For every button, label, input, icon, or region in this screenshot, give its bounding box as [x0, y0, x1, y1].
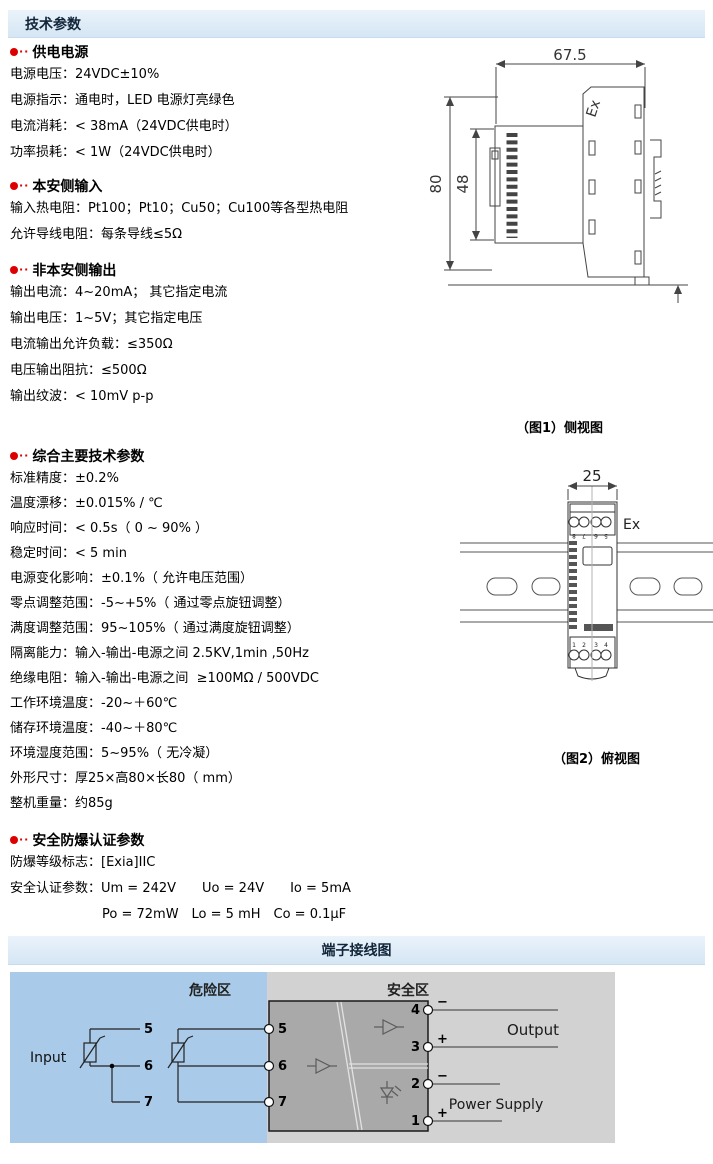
- spec-line: 响应时间：< 0.5s（ 0 ~ 90% ）: [10, 516, 450, 541]
- spec-line: 功率损耗：< 1W（24VDC供电时）: [10, 140, 450, 166]
- spec-line: 电流输出允许负载：≤350Ω: [10, 332, 450, 358]
- top-view-drawing: 25 Ex 8 7 6 5 1 2 3 4: [460, 455, 713, 685]
- section-general-params: ·· 综合主要技术参数 标准精度：±0.2% 温度漂移：±0.015% / ℃ …: [10, 446, 450, 816]
- terminal-number: 6: [594, 532, 598, 539]
- wire-label: 6: [144, 1059, 153, 1074]
- terminal-number: 3: [594, 642, 598, 649]
- spec-line: 绝缘电阻：输入-输出-电源之间 ≥100MΩ / 500VDC: [10, 666, 450, 691]
- spec-line: 整机重量：约85g: [10, 791, 450, 816]
- leader-dots: ··: [19, 48, 29, 56]
- dim-width-label: 67.5: [553, 48, 586, 64]
- spec-line: 满度调整范围：95~105%（ 通过满度旋钮调整）: [10, 616, 450, 641]
- polarity-sign: −: [437, 1069, 448, 1084]
- figure2-caption: （图2）俯视图: [553, 748, 640, 767]
- terminal-wiring-header-bar: 端子接线图: [8, 936, 705, 965]
- terminal-number: 7: [582, 532, 586, 539]
- spec-line: 储存环境温度：-40~＋80℃: [10, 716, 450, 741]
- dim-height-label: 80: [428, 174, 445, 193]
- terminal-number: 5: [278, 1022, 287, 1037]
- hazard-zone-label: 危险区: [188, 982, 231, 999]
- spec-line: 外形尺寸：厚25×高80×长80（ mm）: [10, 766, 450, 791]
- terminal-wiring-title: 端子接线图: [322, 940, 392, 960]
- safe-zone-label: 安全区: [387, 982, 429, 999]
- polarity-sign: +: [437, 1106, 448, 1121]
- spec-line: 电源变化影响：±0.1%（ 允许电压范围）: [10, 566, 450, 591]
- section-title: 本安侧输入: [32, 176, 102, 196]
- spec-line: 电流消耗：< 38mA（24VDC供电时）: [10, 114, 450, 140]
- red-bullet-icon: [10, 182, 18, 190]
- dim-width-label: 25: [582, 467, 601, 485]
- input-label: Input: [30, 1050, 67, 1066]
- terminal-number: 3: [411, 1040, 420, 1055]
- red-bullet-icon: [10, 266, 18, 274]
- spec-line: 电压输出阻抗：≤500Ω: [10, 358, 450, 384]
- terminal-number: 2: [411, 1077, 420, 1092]
- section-heading: ·· 安全防爆认证参数: [10, 830, 450, 850]
- terminal-number: 5: [604, 532, 608, 539]
- spec-line: 零点调整范围：-5~+5%（ 通过零点旋钮调整）: [10, 591, 450, 616]
- section-explosion-proof: ·· 安全防爆认证参数 防爆等级标志：[Exia]IIC 安全认证参数：Um =…: [10, 830, 450, 928]
- spec-line: 标准精度：±0.2%: [10, 466, 450, 491]
- spec-line: 温度漂移：±0.015% / ℃: [10, 491, 450, 516]
- section-title: 综合主要技术参数: [32, 446, 144, 466]
- spec-line: 电源电压：24VDC±10%: [10, 62, 450, 88]
- leader-dots: ··: [19, 452, 29, 460]
- section-power-supply: ·· 供电电源 电源电压：24VDC±10% 电源指示：通电时，LED 电源灯亮…: [10, 42, 450, 166]
- leader-dots: ··: [19, 182, 29, 190]
- tech-params-title: 技术参数: [25, 14, 81, 34]
- wiring-diagram: 危险区 安全区: [10, 972, 615, 1147]
- section-title: 安全防爆认证参数: [32, 830, 144, 850]
- figure2-top-view: 25 Ex 8 7 6 5 1 2 3 4: [460, 455, 713, 689]
- terminal-number: 1: [572, 642, 576, 649]
- ex-marking-label: Ex: [584, 98, 605, 119]
- spec-line-continuation: Po = 72mW Lo = 5 mH Co = 0.1μF: [102, 902, 450, 928]
- dim-inner-label: 48: [454, 174, 472, 193]
- spec-line: 允许导线电阻：每条导线≤5Ω: [10, 222, 450, 248]
- leader-dots: ··: [19, 836, 29, 844]
- spec-line: 输出电流：4~20mA； 其它指定电流: [10, 280, 450, 306]
- figure1-side-view: 67.5 80 48 Ex 3.2: [428, 48, 713, 307]
- spec-line: 隔离能力：输入-输出-电源之间 2.5KV,1min ,50Hz: [10, 641, 450, 666]
- spec-line: 电源指示：通电时，LED 电源灯亮绿色: [10, 88, 450, 114]
- section-title: 非本安侧输出: [32, 260, 116, 280]
- spec-line: 工作环境温度：-20~＋60℃: [10, 691, 450, 716]
- spec-line: 防爆等级标志：[Exia]IIC: [10, 850, 450, 876]
- red-bullet-icon: [10, 48, 18, 56]
- polarity-sign: −: [437, 995, 448, 1010]
- section-intrinsic-input: ·· 本安侧输入 输入热电阻：Pt100；Pt10；Cu50；Cu100等各型热…: [10, 176, 450, 248]
- section-heading: ·· 本安侧输入: [10, 176, 450, 196]
- section-title: 供电电源: [32, 42, 88, 62]
- section-non-intrinsic-output: ·· 非本安侧输出 输出电流：4~20mA； 其它指定电流 输出电压：1~5V；…: [10, 260, 450, 410]
- terminal-number: 7: [278, 1095, 287, 1110]
- spec-line: 输出电压：1~5V；其它指定电压: [10, 306, 450, 332]
- terminal-number: 6: [278, 1059, 287, 1074]
- section-heading: ·· 供电电源: [10, 42, 450, 62]
- section-heading: ·· 综合主要技术参数: [10, 446, 450, 466]
- red-bullet-icon: [10, 452, 18, 460]
- spec-line: 输入热电阻：Pt100；Pt10；Cu50；Cu100等各型热电阻: [10, 196, 450, 222]
- terminal-number: 4: [604, 642, 608, 649]
- spec-line: 安全认证参数：Um = 242V Uo = 24V Io = 5mA: [10, 876, 450, 902]
- wiring-diagram-svg: 危险区 安全区: [10, 972, 615, 1143]
- power-supply-label: Power Supply: [449, 1097, 544, 1113]
- wire-label: 5: [144, 1022, 153, 1037]
- red-bullet-icon: [10, 836, 18, 844]
- isolator-block: [269, 1001, 428, 1131]
- terminal-number: 1: [411, 1114, 420, 1129]
- section-heading: ·· 非本安侧输出: [10, 260, 450, 280]
- datasheet-page: 技术参数 ·· 供电电源 电源电压：24VDC±10% 电源指示：通电时，LED…: [0, 0, 713, 1164]
- polarity-sign: +: [437, 1032, 448, 1047]
- side-view-drawing: 67.5 80 48 Ex 3.2: [428, 48, 713, 303]
- wire-label: 7: [144, 1095, 153, 1110]
- terminal-number: 2: [582, 642, 586, 649]
- spec-line: 稳定时间：< 5 min: [10, 541, 450, 566]
- spec-line: 输出纹波：< 10mV p-p: [10, 384, 450, 410]
- terminal-number: 4: [411, 1003, 420, 1018]
- spec-line: 环境湿度范围：5~95%（ 无冷凝）: [10, 741, 450, 766]
- figure1-caption: （图1）侧视图: [516, 417, 603, 436]
- leader-dots: ··: [19, 266, 29, 274]
- output-label: Output: [507, 1021, 559, 1039]
- terminal-number: 8: [572, 532, 576, 539]
- tech-params-header-bar: 技术参数: [8, 10, 705, 38]
- ex-marking-label: Ex: [623, 517, 640, 533]
